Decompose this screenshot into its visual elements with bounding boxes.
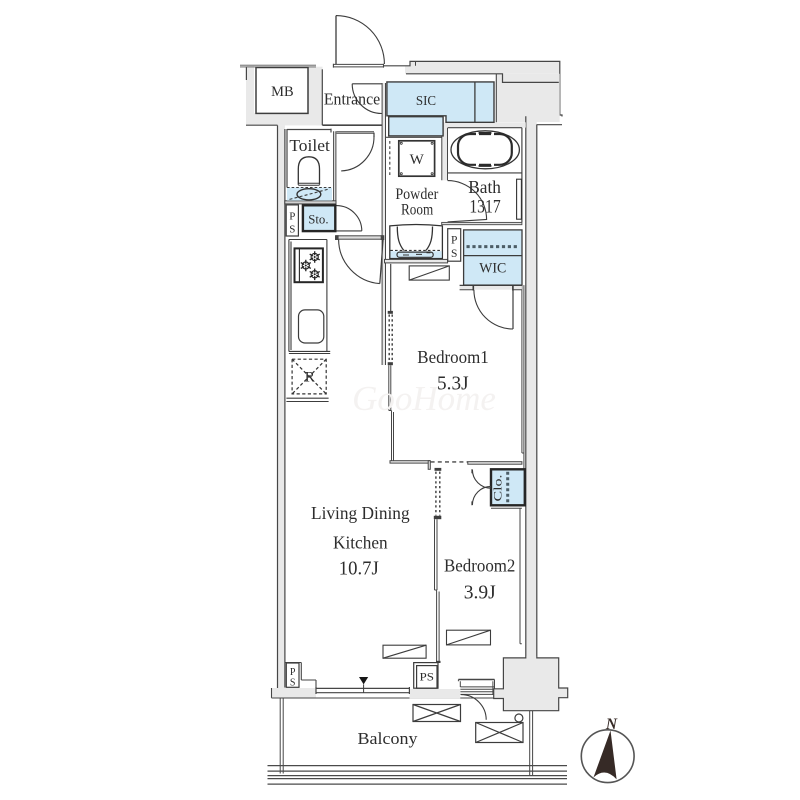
svg-text:Powder: Powder <box>395 186 439 203</box>
svg-text:S: S <box>289 224 295 236</box>
svg-text:Balcony: Balcony <box>358 729 419 748</box>
svg-text:PS: PS <box>420 670 435 684</box>
svg-text:Room: Room <box>401 202 433 219</box>
svg-text:Bedroom1: Bedroom1 <box>417 347 488 367</box>
svg-text:S: S <box>451 248 457 260</box>
svg-text:3.9J: 3.9J <box>464 582 496 604</box>
svg-text:Toilet: Toilet <box>289 136 330 155</box>
svg-text:Kitchen: Kitchen <box>333 532 388 552</box>
svg-text:Clo.: Clo. <box>491 475 505 502</box>
svg-text:5.3J: 5.3J <box>437 373 469 395</box>
svg-text:R: R <box>305 370 315 386</box>
svg-text:Sto.: Sto. <box>308 213 328 227</box>
svg-text:Bedroom2: Bedroom2 <box>444 556 515 576</box>
svg-text:P: P <box>289 211 295 223</box>
svg-text:P: P <box>290 667 296 678</box>
svg-text:Bath: Bath <box>468 177 501 197</box>
svg-text:WIC: WIC <box>479 261 506 277</box>
svg-text:MB: MB <box>271 84 294 100</box>
svg-text:GooHome: GooHome <box>352 379 496 418</box>
svg-text:10.7J: 10.7J <box>339 558 379 580</box>
svg-text:P: P <box>451 235 457 247</box>
svg-text:N: N <box>605 716 618 733</box>
svg-text:S: S <box>290 678 296 689</box>
svg-text:Entrance: Entrance <box>324 89 380 108</box>
svg-text:1317: 1317 <box>469 198 500 218</box>
svg-text:W: W <box>410 152 425 168</box>
svg-text:Living Dining: Living Dining <box>311 503 410 523</box>
svg-text:SIC: SIC <box>416 94 436 109</box>
